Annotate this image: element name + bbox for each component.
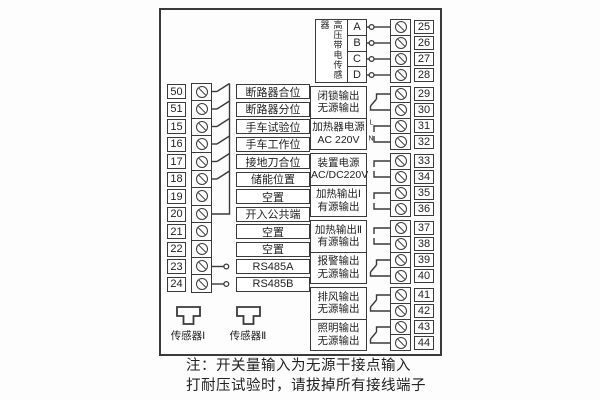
terminal-number-32: 32 [414, 135, 434, 149]
screw-icon [395, 203, 407, 215]
screw-terminal-50 [192, 84, 211, 100]
output-label-37-38: 加热输出Ⅱ有源输出 [311, 221, 366, 252]
output-label-43-44: 照明输出无源输出 [311, 319, 366, 351]
screw-terminal-36 [391, 200, 410, 216]
terminal-number-19: 19 [167, 189, 186, 204]
sensor-2-label: 传感器Ⅱ [226, 328, 270, 343]
terminal-wiring-diagram: LN 传感器Ⅰ 传感器Ⅱ 注：开关量输入为无源干接点输入 打耐压试验时，请拔掉所… [0, 0, 600, 400]
sensor-1-label: 传感器Ⅰ [166, 328, 210, 343]
terminal-number-23: 23 [167, 259, 186, 274]
terminal-number-17: 17 [167, 154, 186, 169]
terminal-number-27: 27 [414, 52, 434, 66]
screw-icon [395, 53, 407, 65]
screw-icon [395, 120, 407, 132]
terminal-number-16: 16 [167, 137, 186, 152]
screw-icon [196, 86, 208, 98]
output-label-35-36: 加热输出Ⅰ有源输出 [311, 185, 366, 217]
note-line-2: 打耐压试验时，请拔掉所有接线端子 [186, 377, 426, 397]
terminal-number-50: 50 [167, 84, 186, 99]
screw-icon [196, 190, 208, 202]
terminal-number-44: 44 [414, 336, 434, 350]
screw-terminal-35 [391, 185, 410, 201]
screw-icon [395, 321, 407, 333]
screw-icon [196, 278, 208, 290]
screw-terminal-26 [391, 35, 410, 51]
output-label-text: 加热输出Ⅱ有源输出 [311, 224, 366, 249]
output-label-group-1: 闭锁输出无源输出加热器电源AC 220V [310, 86, 367, 150]
screw-icon [196, 121, 208, 133]
screw-icon [196, 103, 208, 115]
screw-terminal-20 [192, 205, 211, 222]
terminal-number-43: 43 [414, 320, 434, 334]
input-screw-strip [191, 83, 212, 293]
input-label-16: 手车工作位 [236, 137, 310, 152]
screw-terminal-18 [192, 170, 211, 187]
output-screw-strip-3 [390, 153, 411, 217]
screw-terminal-37 [391, 221, 410, 236]
screw-terminal-31 [391, 118, 410, 134]
screw-icon [196, 225, 208, 237]
screw-icon [196, 243, 208, 255]
screw-terminal-23 [192, 257, 211, 274]
output-label-text: 报警输出无源输出 [311, 255, 366, 280]
terminal-number-15: 15 [167, 119, 186, 134]
terminal-number-33: 33 [414, 154, 434, 168]
screw-icon [196, 208, 208, 220]
channel-box-A: A [348, 20, 366, 35]
output-label-text: 加热输出Ⅰ有源输出 [311, 188, 366, 213]
output-label-group-2: 装置电源AC/DC220V加热输出Ⅰ有源输出 [310, 153, 367, 217]
input-label-22: 空置 [236, 242, 310, 257]
screw-icon [395, 155, 407, 167]
output-label-text: 装置电源AC/DC220V [311, 157, 366, 182]
hv-sensor-label-cell: 高压带电传感器 [316, 20, 348, 82]
screw-terminal-32 [391, 133, 410, 149]
terminal-number-29: 29 [414, 87, 434, 101]
screw-terminal-43 [391, 319, 410, 335]
output-label-31-32: 加热器电源AC 220V [311, 118, 366, 150]
screw-terminal-42 [391, 303, 410, 319]
screw-terminal-44 [391, 334, 410, 350]
hv-sensor-label: 高压带电传感器 [319, 20, 345, 82]
terminal-number-18: 18 [167, 172, 186, 187]
terminal-number-24: 24 [167, 277, 186, 292]
screw-terminal-30 [391, 102, 410, 118]
screw-terminal-34 [391, 169, 410, 185]
terminal-number-34: 34 [414, 170, 434, 184]
screw-terminal-21 [192, 222, 211, 239]
note-line-1: 注：开关量输入为无源干接点输入 [186, 357, 426, 377]
screw-icon [395, 305, 407, 317]
screw-terminal-24 [192, 274, 211, 291]
output-screw-strip-1 [390, 19, 411, 83]
terminal-number-39: 39 [414, 253, 434, 267]
screw-icon [395, 88, 407, 100]
screw-terminal-40 [391, 267, 410, 283]
input-label-20: 开入公共端 [236, 207, 310, 222]
output-label-group-4: 排风输出无源输出照明输出无源输出 [310, 287, 367, 351]
screw-icon [395, 171, 407, 183]
screw-terminal-22 [192, 240, 211, 257]
screw-icon [395, 37, 407, 49]
screw-icon [395, 238, 407, 250]
input-label-15: 手车试验位 [236, 119, 310, 134]
input-label-23: RS485A [236, 259, 310, 274]
output-label-41-42: 排风输出无源输出 [311, 288, 366, 319]
terminal-number-25: 25 [414, 20, 434, 34]
terminal-number-35: 35 [414, 186, 434, 200]
output-screw-strip-5 [390, 287, 411, 351]
screw-icon [196, 138, 208, 150]
screw-icon [395, 104, 407, 116]
terminal-number-40: 40 [414, 269, 434, 283]
screw-terminal-39 [391, 252, 410, 268]
hv-sensor-block: 高压带电传感器ABCD [315, 19, 367, 83]
input-label-24: RS485B [236, 277, 310, 292]
output-label-text: 照明输出无源输出 [311, 322, 366, 347]
input-label-51: 断路器分位 [236, 102, 310, 117]
output-label-group-3: 加热输出Ⅱ有源输出报警输出无源输出 [310, 220, 367, 284]
terminal-number-37: 37 [414, 221, 434, 235]
screw-terminal-17 [192, 152, 211, 169]
terminal-number-42: 42 [414, 304, 434, 318]
terminal-number-41: 41 [414, 288, 434, 302]
output-screw-strip-4 [390, 220, 411, 284]
screw-icon [395, 21, 407, 33]
output-label-33-34: 装置电源AC/DC220V [311, 154, 366, 185]
output-screw-strip-2 [390, 86, 411, 150]
screw-icon [196, 173, 208, 185]
screw-icon [395, 289, 407, 301]
screw-icon [196, 156, 208, 168]
terminal-number-20: 20 [167, 207, 186, 222]
terminal-number-30: 30 [414, 103, 434, 117]
screw-icon [395, 337, 407, 349]
terminal-number-51: 51 [167, 102, 186, 117]
screw-icon [395, 254, 407, 266]
output-label-39-40: 报警输出无源输出 [311, 252, 366, 284]
channel-box-D: D [348, 66, 366, 82]
screw-terminal-29 [391, 87, 410, 102]
input-label-50: 断路器合位 [236, 84, 310, 99]
output-label-text: 闭锁输出无源输出 [311, 90, 366, 115]
screw-terminal-15 [192, 118, 211, 135]
output-label-29-30: 闭锁输出无源输出 [311, 87, 366, 118]
terminal-number-31: 31 [414, 119, 434, 133]
input-label-18: 储能位置 [236, 172, 310, 187]
screw-icon [196, 260, 208, 272]
screw-terminal-38 [391, 236, 410, 252]
screw-icon [395, 222, 407, 234]
screw-terminal-33 [391, 154, 410, 169]
input-label-19: 空置 [236, 189, 310, 204]
terminal-number-38: 38 [414, 237, 434, 251]
screw-icon [395, 187, 407, 199]
terminal-number-21: 21 [167, 224, 186, 239]
output-label-text: 加热器电源AC 220V [311, 121, 366, 146]
screw-terminal-25 [391, 20, 410, 35]
output-label-text: 排风输出无源输出 [311, 291, 366, 316]
hv-sensor-channels: ABCD [348, 20, 366, 82]
screw-icon [395, 69, 407, 81]
terminal-number-22: 22 [167, 242, 186, 257]
terminal-number-28: 28 [414, 68, 434, 82]
screw-terminal-28 [391, 66, 410, 82]
channel-box-C: C [348, 51, 366, 67]
screw-terminal-27 [391, 51, 410, 67]
screw-icon [395, 136, 407, 148]
channel-box-B: B [348, 35, 366, 51]
screw-terminal-16 [192, 135, 211, 152]
terminal-number-36: 36 [414, 202, 434, 216]
input-label-17: 接地刀合位 [236, 154, 310, 169]
screw-terminal-41 [391, 288, 410, 303]
screw-terminal-51 [192, 100, 211, 117]
input-label-21: 空置 [236, 224, 310, 239]
screw-terminal-19 [192, 187, 211, 204]
terminal-number-26: 26 [414, 36, 434, 50]
screw-icon [395, 270, 407, 282]
